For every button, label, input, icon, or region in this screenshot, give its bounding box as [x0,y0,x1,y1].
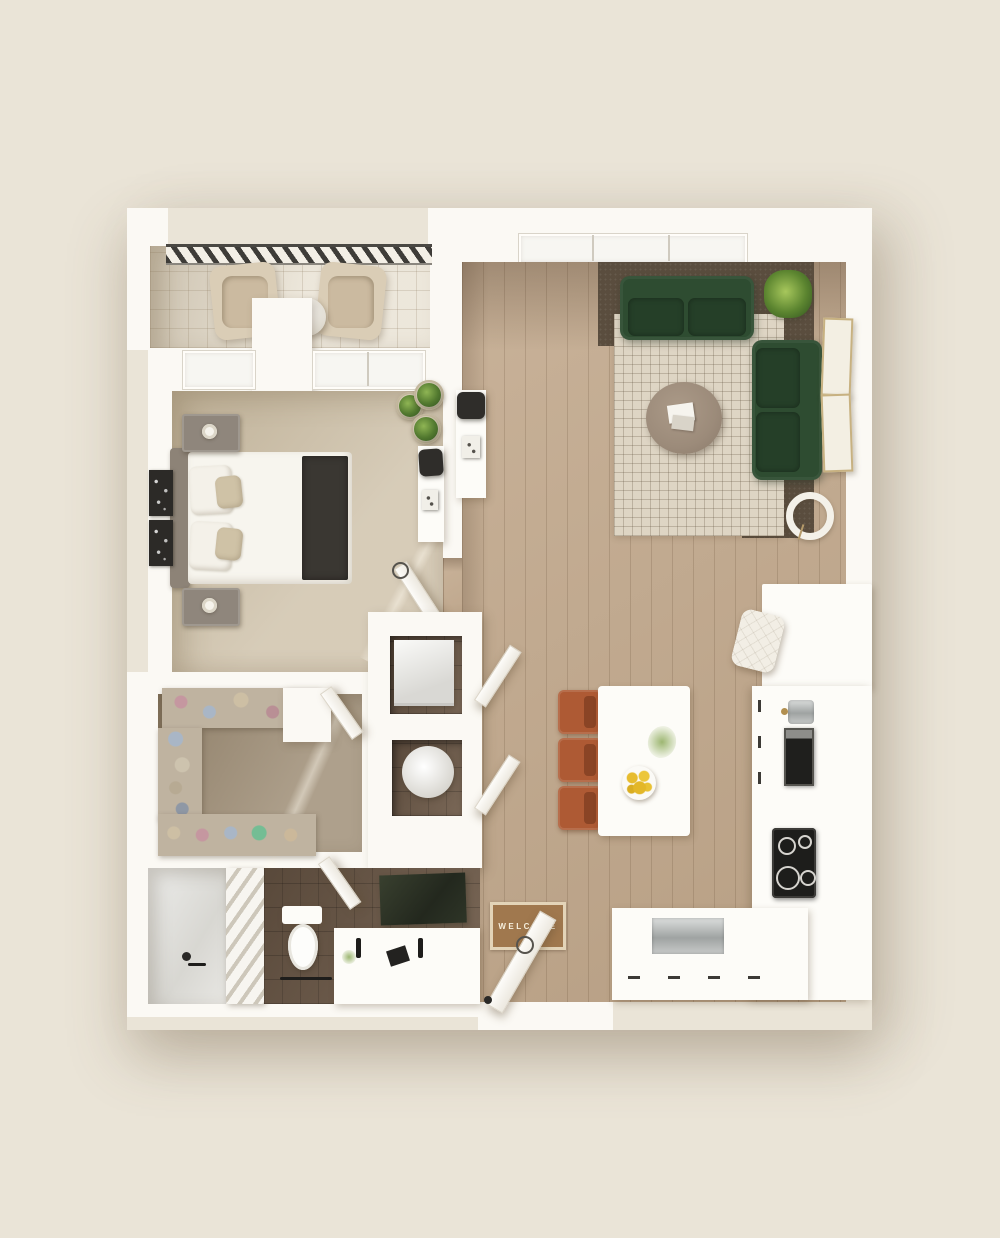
lounge-chair-right-cushion [328,276,374,328]
vanity-mirror [379,873,467,926]
living-window-strip [518,233,748,265]
sofa-top-cushion-right [688,298,746,336]
arc-floor-lamp [786,492,834,540]
picture-frame-lower [821,394,854,473]
bed-foot-runner [302,456,348,580]
built-in-oven [784,728,814,786]
bottom-wall-step-left [127,1017,478,1030]
sofa-top-cushion-left [628,298,684,336]
burner-3 [776,866,800,890]
toilet-paper-bar [280,977,332,980]
bedroom-desk-magazine [422,490,438,510]
bedroom-window-left [182,350,256,390]
wall-art-upper [149,470,173,516]
front-door-hinge [484,996,492,1004]
toilet-tank [282,906,322,924]
shower-valve [182,952,191,961]
closet-shelf-left [158,728,202,820]
water-heater [402,746,454,798]
drawer-handle-1 [758,700,761,712]
bedroom-window-right [312,350,426,390]
vanity-plant [342,950,356,964]
potted-plant-2 [417,383,441,407]
balcony-door-pier [252,298,312,394]
burner-4 [800,870,816,886]
console-desk-papers [462,436,480,458]
living-window-mullion-1 [592,235,594,261]
shower-head-arm [188,963,206,966]
dining-chair-3-seat [584,792,596,824]
dishwasher [652,918,724,954]
bottom-wall-step-right [613,1000,872,1030]
vanity-faucet-right [418,938,423,958]
drawer-handle-3 [758,772,761,784]
bedroom-desk-chair [418,448,444,477]
towel-rack [226,868,264,1004]
burner-1 [778,837,796,855]
lemons [622,766,656,800]
closet-shelf-shoes [158,814,316,856]
washer [394,640,454,706]
bed-accent-pillow-bottom [214,527,243,562]
living-window-mullion-2 [668,235,670,261]
cabinet-handle-1 [628,976,640,979]
palm-plant [764,270,812,318]
wall-art-lower [149,520,173,566]
dining-chair-2-seat [584,744,596,776]
dining-chair-1-seat [584,696,596,728]
drawer-handle-2 [758,736,761,748]
front-door-handle [516,936,534,954]
floor-plan-canvas: WELCOME [0,0,1000,1238]
console-desk-chair [457,392,485,419]
left-wall-step [127,350,148,672]
magazine-small [671,415,695,432]
picture-frame-upper [821,318,854,397]
nightstand-lamp-bottom [202,598,217,613]
balcony-railing [166,244,432,265]
lemon-bowl [622,766,656,800]
bed-accent-pillow-top [214,475,243,510]
cooktop [772,828,816,898]
bed-headboard [170,448,190,588]
walk-in-shower [148,868,226,1004]
vanity-faucet-left [356,938,361,958]
potted-plant-3 [414,417,438,441]
kitchen-sink [788,700,814,724]
balcony-top-opening [168,208,428,248]
cabinet-handle-2 [668,976,680,979]
cabinet-handle-3 [708,976,720,979]
cabinet-handle-4 [748,976,760,979]
dining-table [598,686,690,836]
burner-2 [798,835,812,849]
loveseat-cushion-bottom [756,412,800,472]
loveseat-cushion-top [756,348,800,408]
bedroom-window-mullion [367,352,369,386]
nightstand-lamp-top [202,424,217,439]
bedroom-door-handle [392,562,409,579]
sink-faucet [781,708,788,715]
